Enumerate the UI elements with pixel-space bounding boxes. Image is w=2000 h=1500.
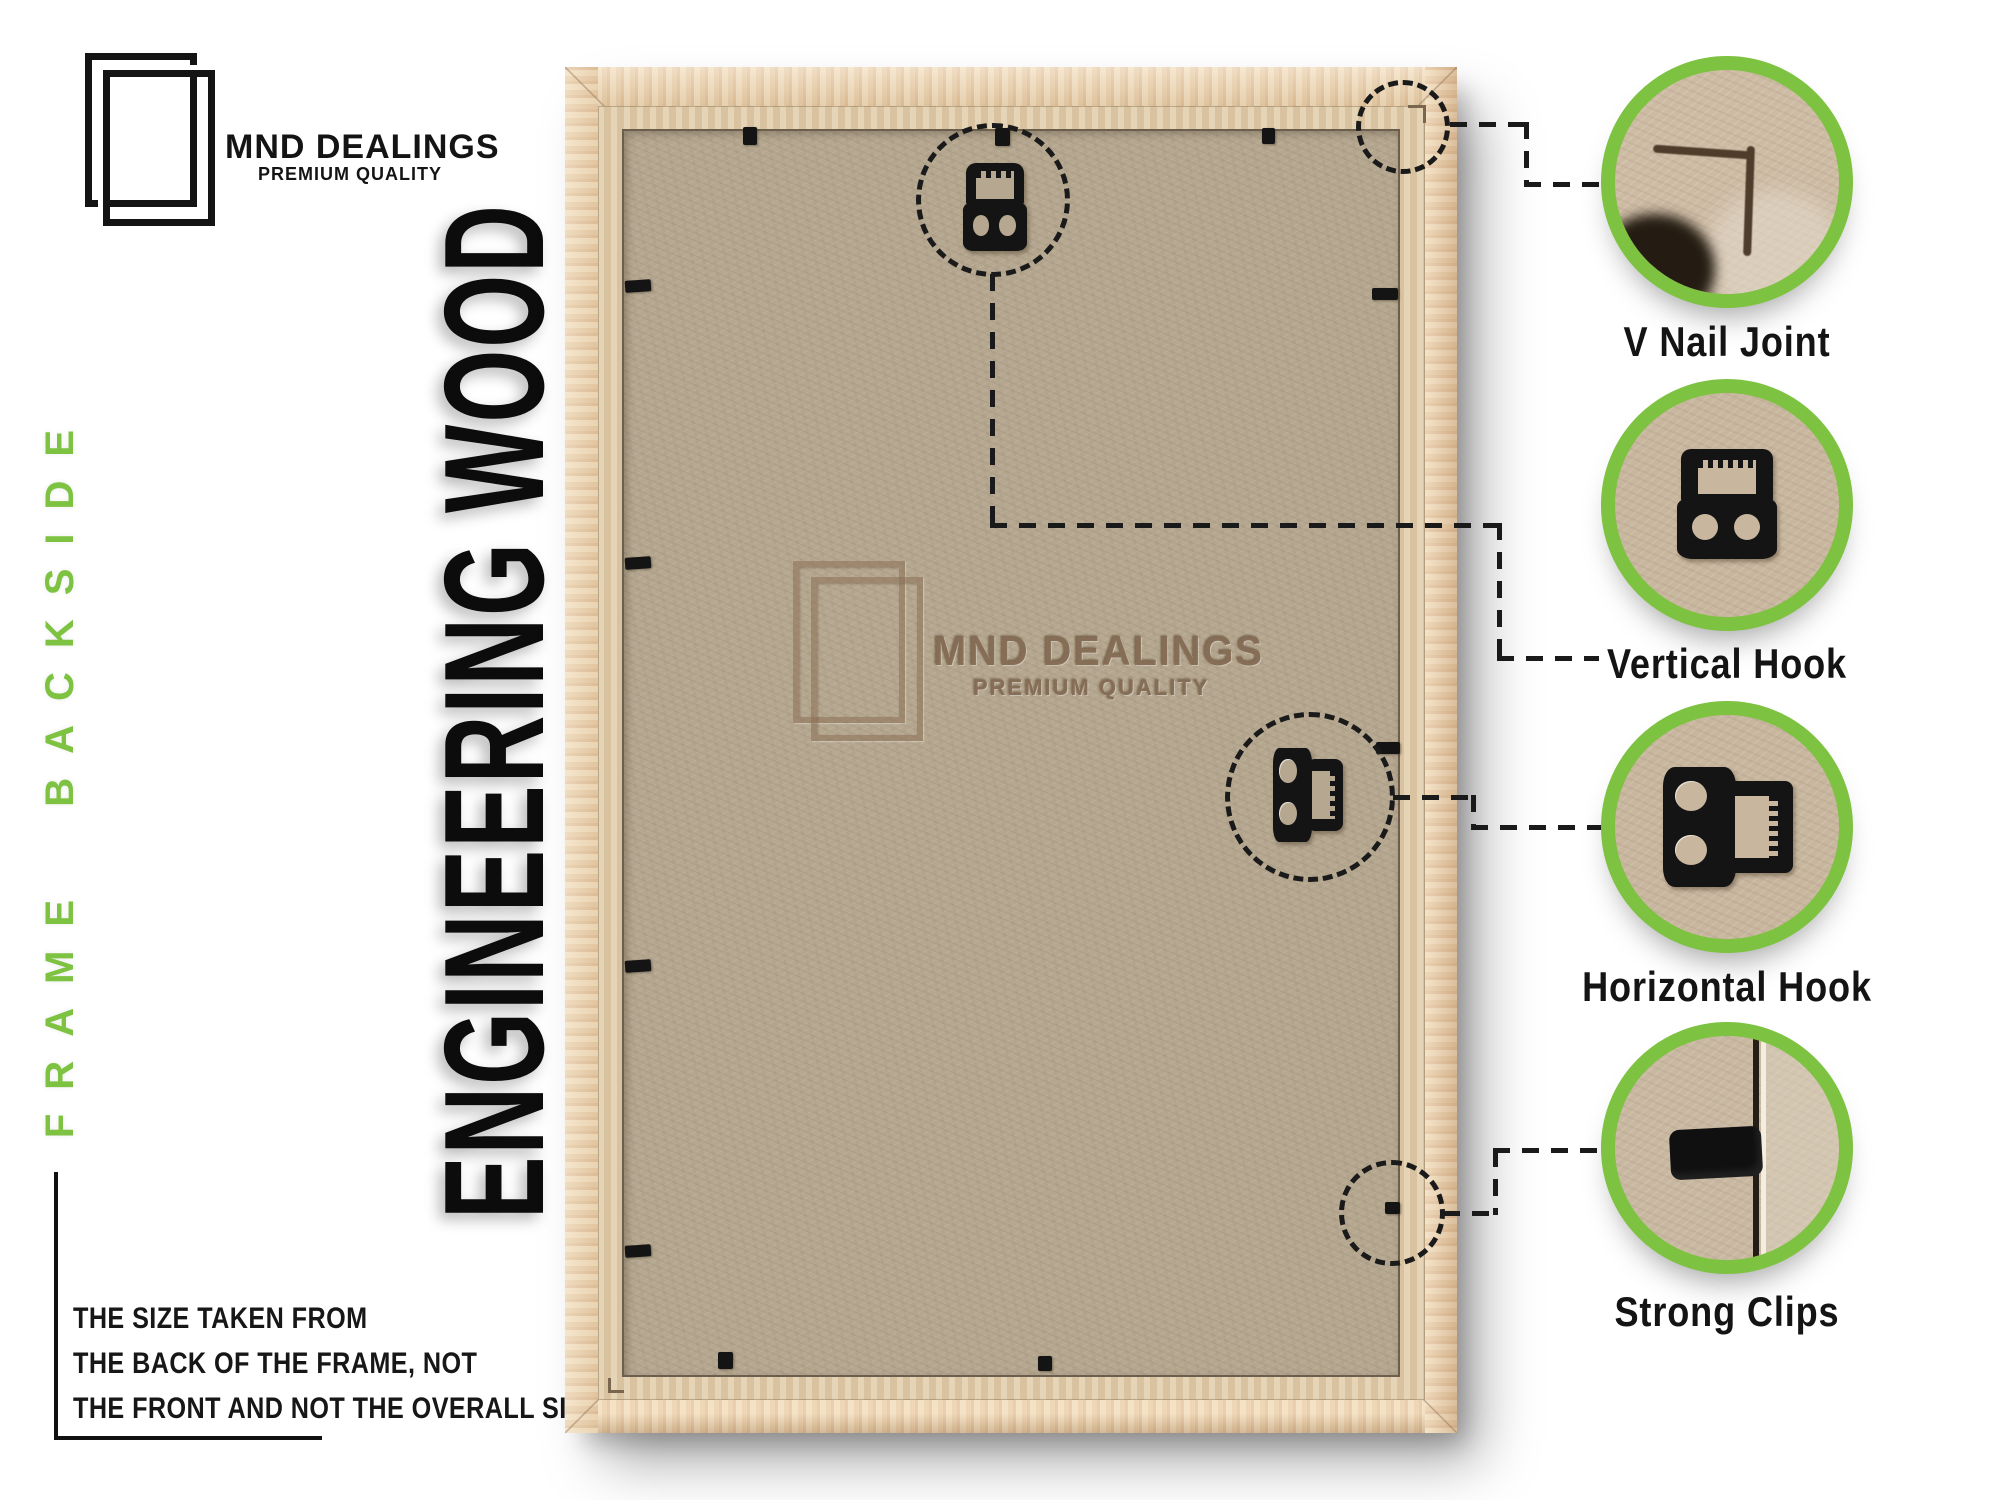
callout-label: Horizontal Hook <box>1546 963 1907 1011</box>
clip-highlight-circle <box>1339 1160 1445 1266</box>
horizontal-hook-photo <box>1663 767 1793 887</box>
clip <box>1038 1356 1052 1371</box>
clip <box>625 959 652 973</box>
vertical-hook-highlight-circle <box>916 123 1070 277</box>
callout-label: Vertical Hook <box>1546 640 1907 688</box>
frame-backside-label: FRAME BACKSIDE <box>25 382 95 1162</box>
clip <box>625 1244 652 1258</box>
callout-connector <box>1524 182 1612 187</box>
engineering-wood-label: ENGINEERING WOOD <box>420 229 570 1219</box>
wood-shadow <box>1601 214 1715 308</box>
callout-connector <box>990 274 995 527</box>
callout-connector <box>1471 825 1609 830</box>
clip <box>1372 288 1398 300</box>
callout-connector <box>1471 795 1476 829</box>
clip <box>625 279 652 293</box>
v-nail-groove-icon <box>1653 145 1751 160</box>
v-nail-mark <box>608 1390 624 1393</box>
note-line: THE SIZE TAKEN FROM <box>73 1296 607 1341</box>
board-edge-light <box>1765 1036 1839 1260</box>
clip <box>718 1352 733 1369</box>
callout-connector <box>1497 523 1502 660</box>
callout-connector <box>1393 795 1475 800</box>
strong-clips-callout <box>1601 1022 1853 1274</box>
clip <box>743 127 757 145</box>
corner-highlight-circle <box>1356 80 1450 174</box>
frame-wood-top <box>565 67 1457 106</box>
callout-label: V Nail Joint <box>1546 318 1907 366</box>
watermark-frame-front-icon <box>811 577 923 741</box>
frame-wood-left <box>565 67 598 1433</box>
horizontal-hook-callout <box>1601 701 1853 953</box>
note-line: THE FRONT AND NOT THE OVERALL SIZE. <box>73 1386 607 1431</box>
note-line: THE BACK OF THE FRAME, NOT <box>73 1341 607 1386</box>
vertical-hook-photo <box>1677 449 1777 559</box>
callout-connector <box>1493 1148 1609 1153</box>
callout-connector <box>1443 1211 1497 1216</box>
callout-connector <box>1524 122 1529 186</box>
frame-wood-bottom <box>565 1400 1457 1433</box>
note-vertical-line <box>54 1172 58 1440</box>
callout-label: Strong Clips <box>1546 1288 1907 1336</box>
clip <box>625 556 652 570</box>
callout-connector <box>990 523 1502 528</box>
watermark-name: MND DEALINGS <box>933 627 1264 675</box>
logo-frame-front-icon <box>103 70 215 226</box>
brand-tagline: PREMIUM QUALITY <box>250 164 450 185</box>
clip <box>1262 128 1275 144</box>
callout-connector <box>1493 1150 1498 1215</box>
horizontal-hook-highlight-circle <box>1225 712 1395 882</box>
vertical-hook-callout <box>1601 379 1853 631</box>
callout-connector <box>1450 122 1528 127</box>
watermark-tagline: PREMIUM QUALITY <box>973 675 1210 701</box>
strong-clip-photo <box>1669 1126 1763 1181</box>
v-nail-joint-callout <box>1601 56 1853 308</box>
size-note: THE SIZE TAKEN FROM THE BACK OF THE FRAM… <box>73 1296 607 1431</box>
note-horizontal-line <box>54 1436 322 1440</box>
brand-name: MND DEALINGS <box>225 128 500 167</box>
